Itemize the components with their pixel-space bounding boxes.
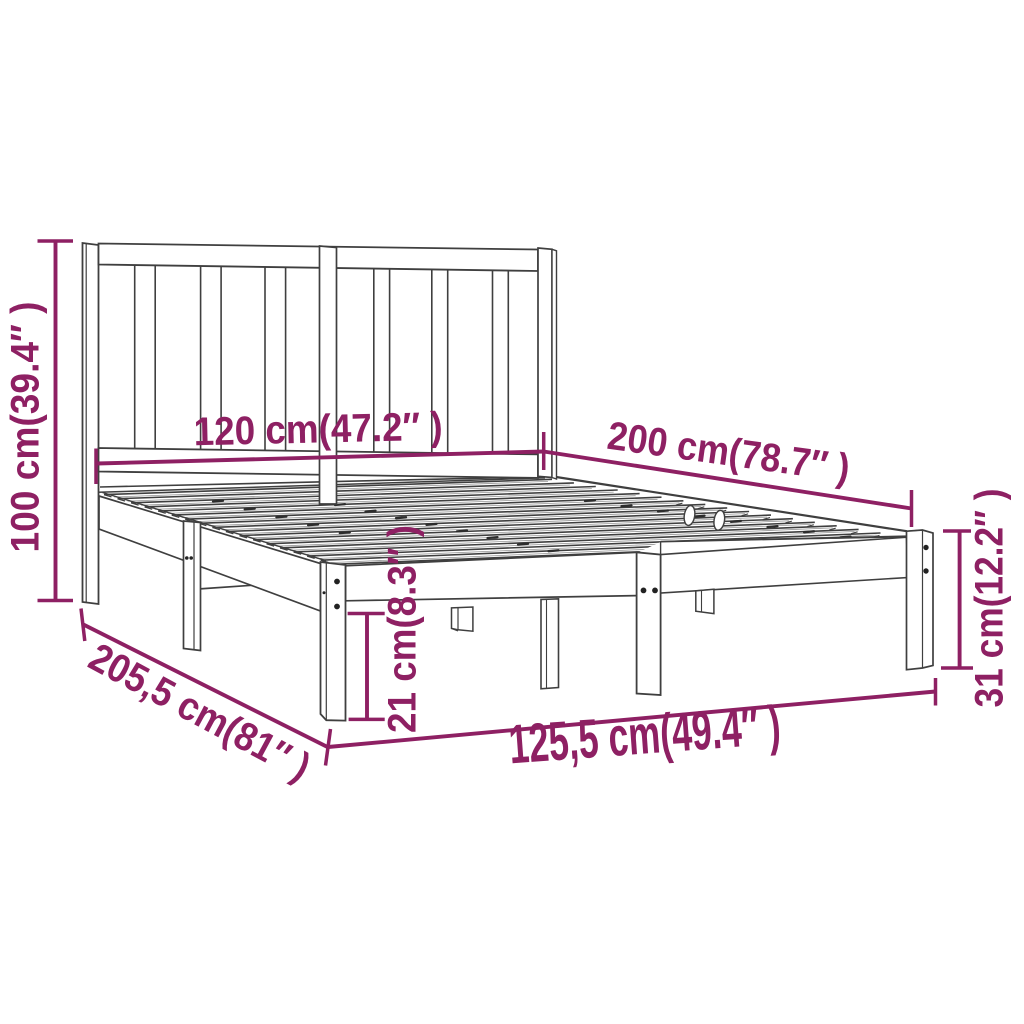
svg-text:21 cm(8.3″ ): 21 cm(8.3″ ) [381,525,425,733]
svg-text:120 cm(47.2″ ): 120 cm(47.2″ ) [193,405,443,455]
svg-text:31 cm(12.2″ ): 31 cm(12.2″ ) [968,489,1012,708]
svg-text:100 cm(39.4″ ): 100 cm(39.4″ ) [4,302,48,553]
